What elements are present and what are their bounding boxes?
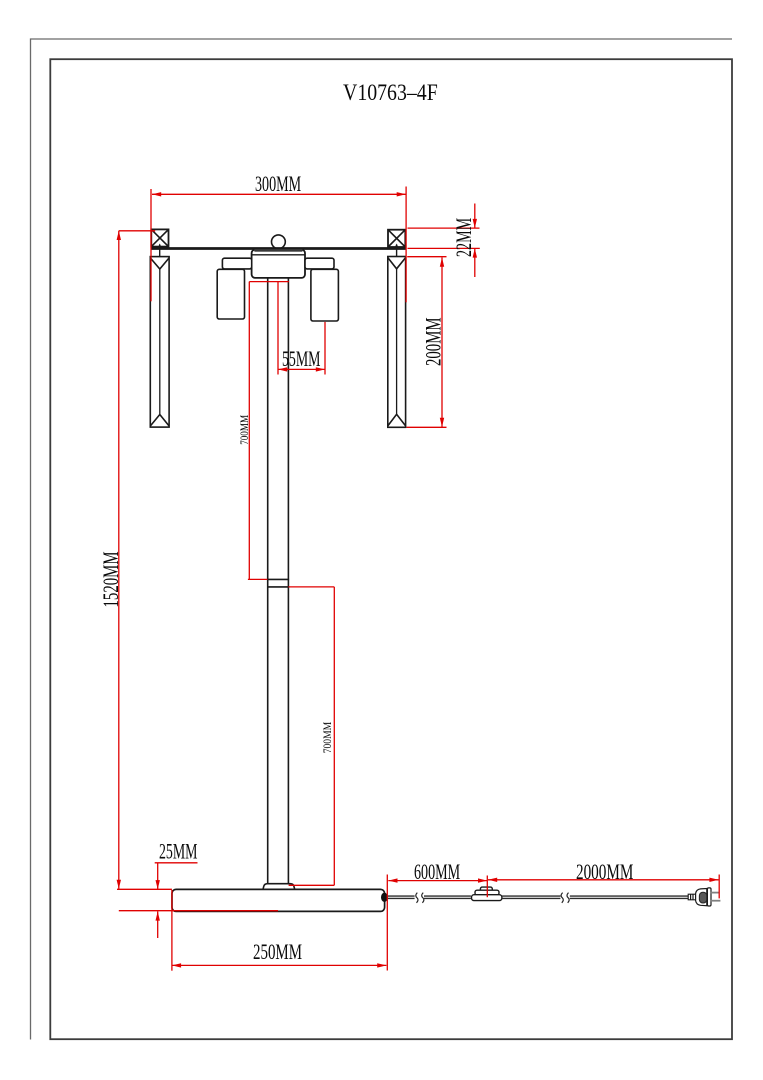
svg-text:700MM: 700MM [321, 722, 334, 754]
svg-text:1520MM: 1520MM [99, 551, 124, 607]
svg-text:200MM: 200MM [422, 317, 447, 366]
svg-text:V10763–4F: V10763–4F [343, 80, 438, 106]
svg-text:22MM: 22MM [452, 218, 476, 257]
svg-text:2000MM: 2000MM [576, 860, 633, 884]
svg-text:250MM: 250MM [253, 940, 302, 965]
svg-text:700MM: 700MM [239, 414, 251, 444]
svg-text:25MM: 25MM [159, 839, 197, 863]
svg-text:300MM: 300MM [255, 172, 301, 196]
svg-text:600MM: 600MM [414, 860, 460, 884]
svg-text:55MM: 55MM [282, 347, 320, 371]
